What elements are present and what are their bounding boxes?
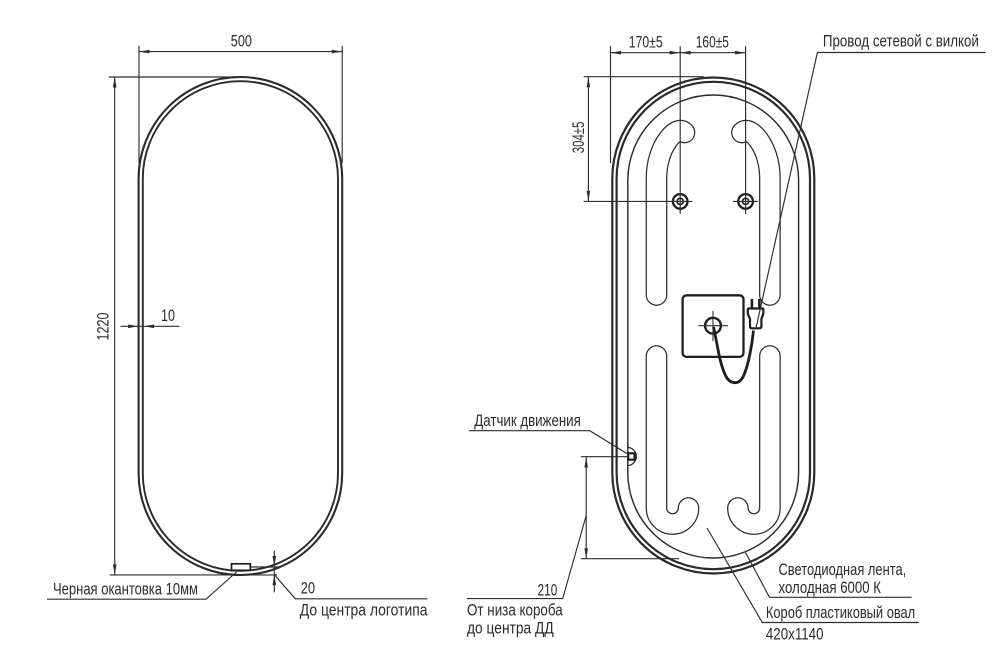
svg-text:210: 210 (538, 581, 558, 600)
svg-text:1220: 1220 (93, 313, 112, 341)
svg-text:20: 20 (301, 578, 315, 597)
svg-text:10: 10 (161, 306, 175, 325)
svg-text:От низа короба: От низа короба (467, 601, 563, 620)
svg-text:500: 500 (231, 32, 252, 51)
svg-text:Черная окантовка 10мм: Черная окантовка 10мм (53, 580, 198, 599)
svg-text:Светодиодная лента,: Светодиодная лента, (779, 560, 907, 579)
svg-text:холодная 6000 К: холодная 6000 К (779, 578, 882, 597)
svg-text:До центра логотипа: До центра логотипа (300, 601, 428, 620)
svg-text:Провод сетевой с вилкой: Провод сетевой с вилкой (823, 31, 979, 50)
svg-text:420х1140: 420х1140 (766, 625, 824, 644)
svg-text:до центра ДД: до центра ДД (467, 619, 554, 638)
svg-text:Короб пластиковый овал: Короб пластиковый овал (766, 603, 915, 622)
svg-text:Датчик движения: Датчик движения (474, 411, 581, 430)
svg-text:170±5: 170±5 (629, 32, 663, 51)
svg-text:160±5: 160±5 (696, 32, 729, 51)
svg-text:304±5: 304±5 (569, 122, 588, 154)
